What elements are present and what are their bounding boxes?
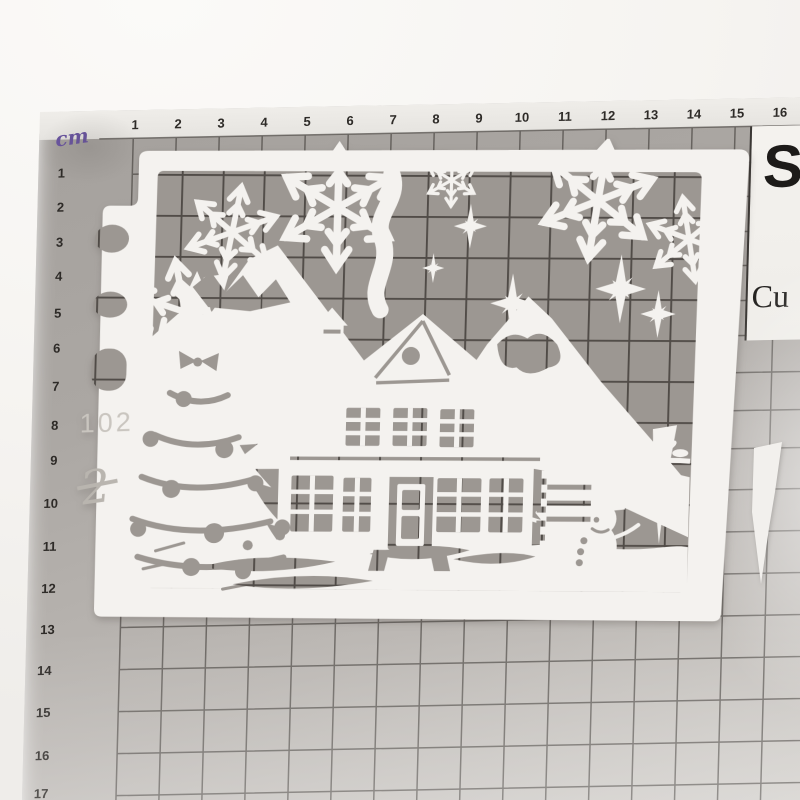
- ruler-number: 10: [500, 109, 543, 125]
- ruler-number: 14: [31, 663, 57, 679]
- ruler-number: 5: [285, 113, 328, 129]
- ruler-number: 13: [629, 107, 672, 123]
- ruler-number: 9: [41, 453, 67, 469]
- ruler-number: 3: [46, 234, 72, 250]
- ruler-number: 15: [715, 105, 758, 121]
- ruler-number: 11: [543, 109, 586, 125]
- ruler-number: 10: [38, 496, 64, 512]
- ruler-number: 16: [29, 748, 55, 764]
- ruler-number: 6: [44, 340, 70, 356]
- ruler-number: 1: [113, 117, 156, 133]
- ruler-number: 9: [457, 110, 500, 126]
- ruler-number: 13: [34, 622, 60, 638]
- ruler-number: 6: [328, 113, 371, 129]
- stencil-scrap-piece: [740, 440, 800, 600]
- stencil-code: 102: [80, 407, 134, 439]
- ruler-number: 2: [47, 199, 73, 215]
- ruler-number: 1: [48, 165, 74, 181]
- ruler-number: 4: [45, 268, 71, 284]
- mat-brand-subtext-partial: Cu: [751, 278, 789, 316]
- ruler-number: 11: [36, 539, 62, 555]
- christmas-house-stencil: 102 2: [71, 137, 761, 640]
- ruler-number: 8: [414, 111, 457, 127]
- ruler-number: 7: [43, 378, 69, 394]
- ruler-number: 4: [242, 114, 285, 130]
- photo-stage: 12345678910111213141516 1234567891011121…: [0, 0, 800, 800]
- ruler-number: 12: [35, 581, 61, 597]
- ruler-number: 5: [45, 305, 71, 321]
- ruler-number: 16: [758, 104, 800, 120]
- ruler-number: 8: [42, 418, 68, 434]
- ruler-number: 17: [28, 786, 54, 800]
- ruler-number: 12: [586, 108, 629, 124]
- ruler-number: 2: [156, 116, 199, 132]
- ruler-number: 14: [672, 106, 715, 122]
- ruler-number: 7: [371, 112, 414, 128]
- mat-brand-text-partial: S: [762, 131, 800, 201]
- ruler-number: 15: [30, 705, 56, 721]
- ruler-number: 3: [199, 115, 242, 131]
